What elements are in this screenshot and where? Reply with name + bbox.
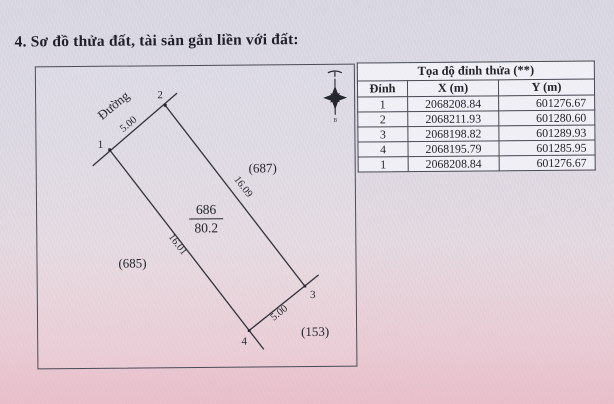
cell-vertex: 4	[358, 142, 408, 157]
section-title: 4. Sơ đồ thửa đất, tài sản gắn liền với …	[15, 31, 299, 51]
cell-y: 601276.67	[499, 95, 595, 111]
col-header-dinh: Đỉnh	[357, 81, 407, 97]
cell-y: 601285.95	[499, 140, 595, 156]
table-title: Tọa độ đỉnh thửa (**)	[357, 61, 594, 81]
table-header-row: Đỉnh X (m) Y (m)	[357, 79, 594, 97]
table-title-row: Tọa độ đỉnh thửa (**)	[357, 61, 594, 81]
vertex-marker-1	[108, 148, 111, 151]
table-row: 1 2068208.84 601276.67	[358, 95, 595, 112]
cell-y: 601289.93	[499, 125, 595, 141]
col-header-x: X (m)	[407, 80, 498, 97]
vertex-label-2: 2	[157, 89, 163, 101]
vertex-marker-2	[164, 104, 167, 107]
cell-y: 601280.60	[499, 110, 595, 126]
cell-x: 2068195.79	[408, 141, 499, 157]
vertex-label-4: 4	[241, 336, 247, 348]
table-row: 2 2068211.93 601280.60	[358, 110, 595, 127]
boundary-line-back	[249, 275, 319, 331]
table-row: 1 2068208.84 601276.67	[358, 155, 595, 172]
cell-vertex: 2	[358, 112, 408, 127]
neighbor-label-right: (687)	[249, 160, 277, 175]
neighbor-label-bottom: (153)	[301, 324, 329, 339]
cell-vertex: 1	[358, 97, 408, 112]
north-letter: B	[333, 118, 337, 124]
cell-x: 2068208.84	[408, 96, 499, 112]
parcel-area: 80.2	[194, 220, 218, 235]
cell-x: 2068198.82	[408, 126, 499, 142]
dimension-front: 5.00	[118, 115, 139, 135]
coordinates-table: Tọa độ đỉnh thửa (**) Đỉnh X (m) Y (m) 1…	[357, 60, 596, 172]
plot-diagram-box: 1 2 3 4 Đường 5.00 16.09 16.01 5.00 686 …	[35, 64, 358, 370]
cell-vertex: 3	[358, 127, 408, 142]
cell-vertex: 1	[358, 157, 408, 172]
parcel-number: 686	[196, 202, 217, 217]
vertex-marker-4	[248, 329, 251, 332]
cell-x: 2068211.93	[408, 111, 499, 127]
boundary-line-right	[165, 104, 305, 287]
plot-diagram-svg: 1 2 3 4 Đường 5.00 16.09 16.01 5.00 686 …	[36, 65, 357, 369]
dimension-back: 5.00	[269, 303, 290, 323]
cell-x: 2068208.84	[408, 156, 499, 172]
dimension-left: 16.01	[166, 232, 189, 257]
vertex-marker-3	[303, 285, 306, 288]
col-header-y: Y (m)	[498, 79, 594, 96]
table-row: 4 2068195.79 601285.95	[358, 140, 595, 157]
land-certificate-page: 4. Sơ đồ thửa đất, tài sản gắn liền với …	[0, 0, 614, 404]
cell-y: 601276.67	[499, 155, 595, 171]
north-arrow-icon: B	[323, 71, 347, 124]
neighbor-label-left: (685)	[118, 255, 146, 270]
vertex-label-1: 1	[98, 139, 104, 151]
table-row: 3 2068198.82 601289.93	[358, 125, 595, 142]
document-content: 4. Sơ đồ thửa đất, tài sản gắn liền với …	[0, 0, 614, 404]
road-label: Đường	[95, 88, 133, 123]
vertex-label-3: 3	[310, 289, 316, 301]
